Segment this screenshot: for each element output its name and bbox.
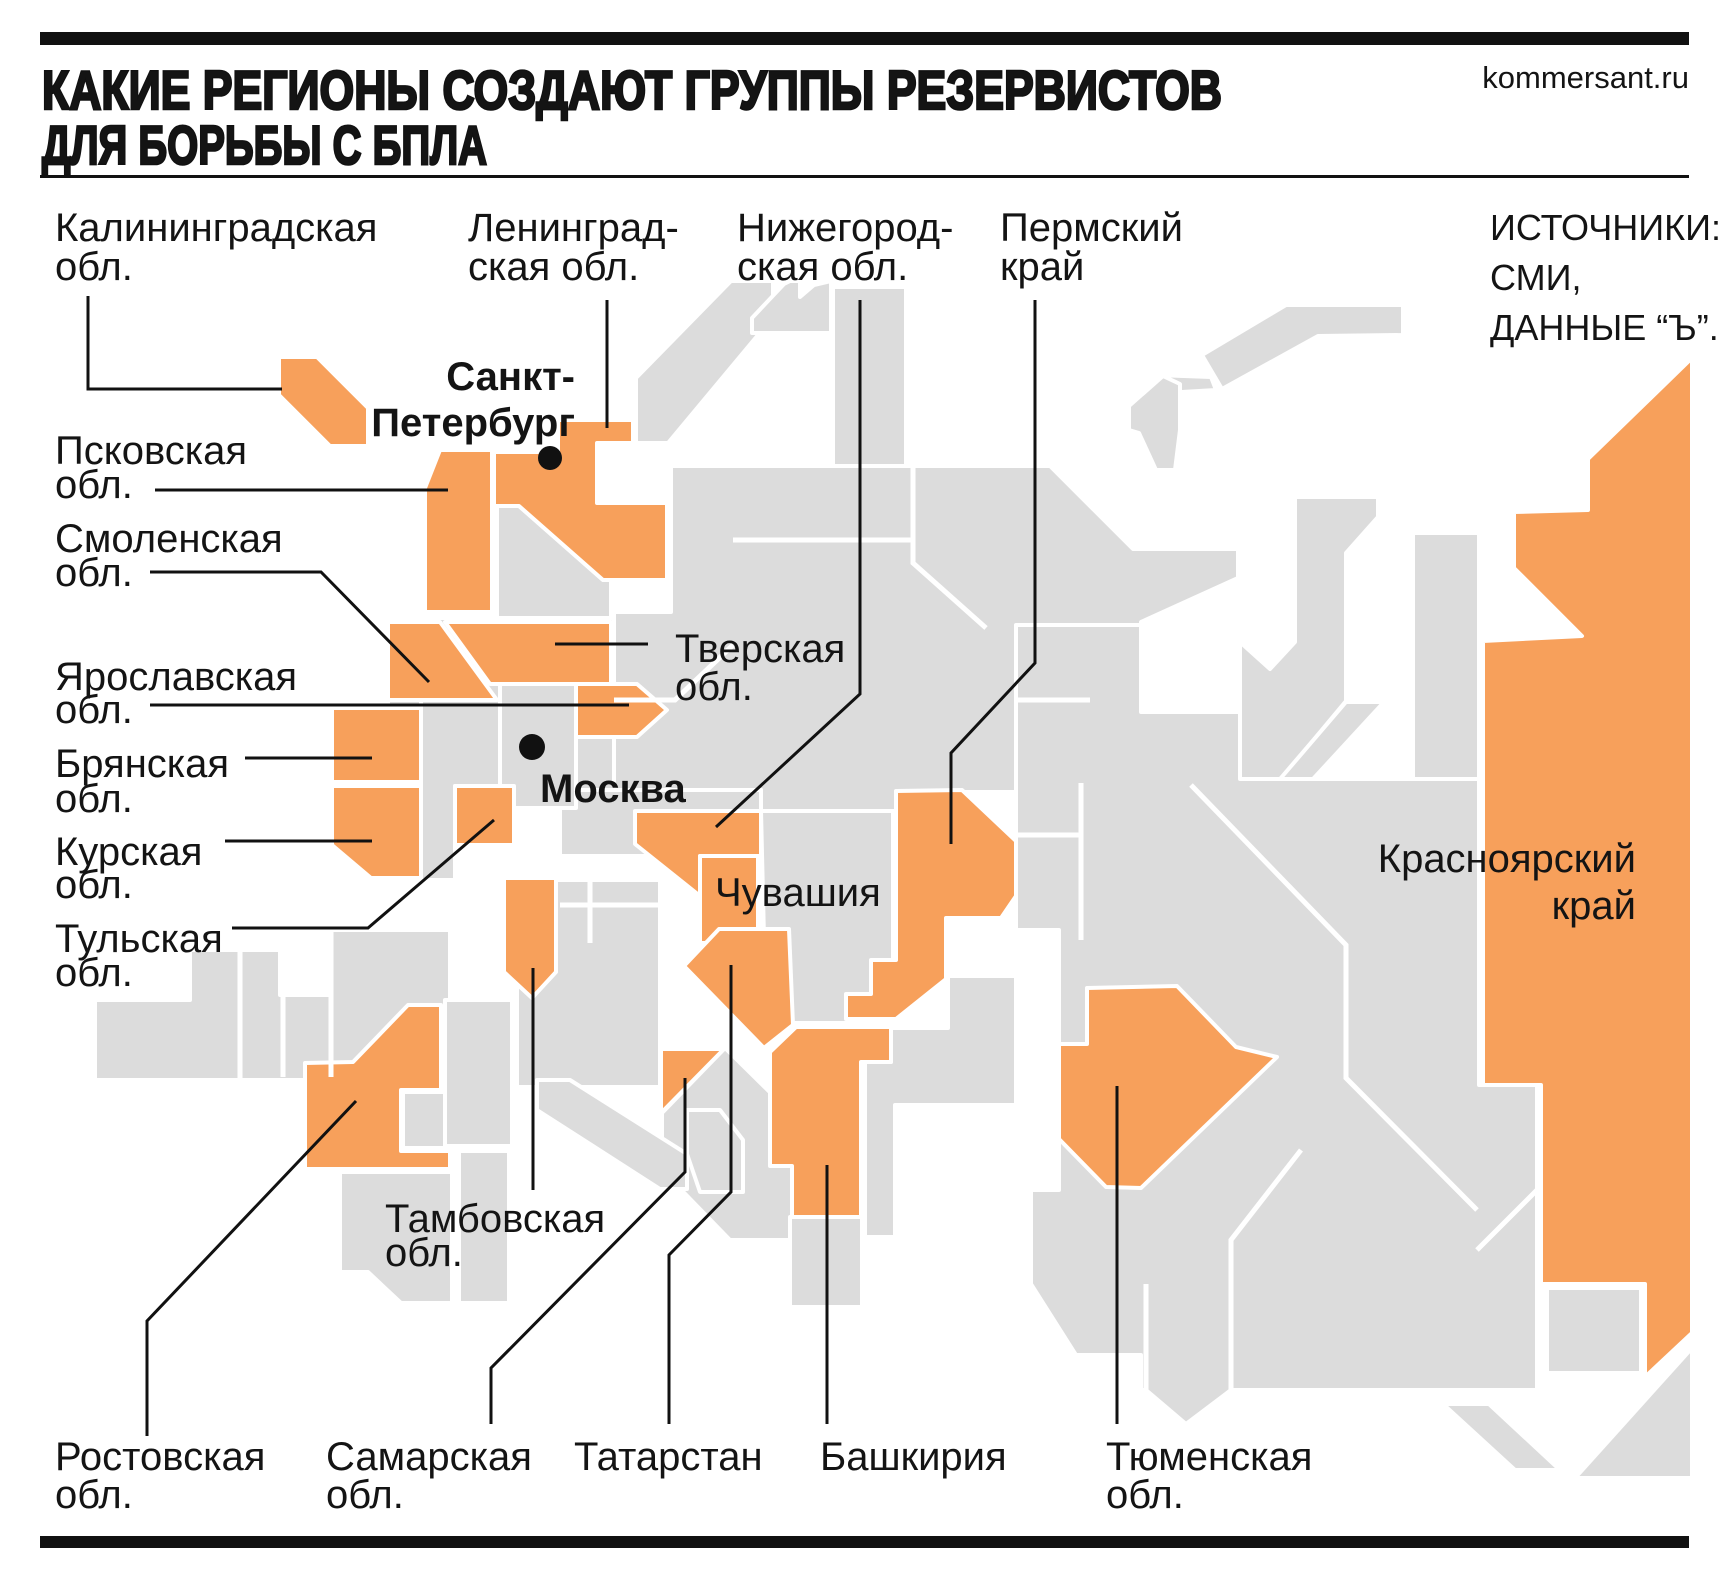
svg-text:ИСТОЧНИКИ:: ИСТОЧНИКИ: bbox=[1490, 207, 1721, 248]
svg-text:Пермский: Пермский bbox=[1000, 206, 1183, 250]
svg-text:обл.: обл. bbox=[55, 551, 133, 595]
svg-text:ская обл.: ская обл. bbox=[737, 245, 908, 289]
svg-text:ДЛЯ БОРЬБЫ С БПЛА: ДЛЯ БОРЬБЫ С БПЛА bbox=[42, 114, 487, 176]
svg-text:Татарстан: Татарстан bbox=[574, 1435, 763, 1479]
svg-text:обл.: обл. bbox=[675, 665, 753, 709]
svg-text:ДАННЫЕ “Ъ”.: ДАННЫЕ “Ъ”. bbox=[1490, 307, 1719, 348]
svg-text:обл.: обл. bbox=[55, 1473, 133, 1517]
svg-text:обл.: обл. bbox=[55, 688, 133, 732]
svg-text:Калининградская: Калининградская bbox=[55, 206, 377, 250]
svg-text:Петербург: Петербург bbox=[371, 401, 575, 445]
svg-text:Красноярский: Красноярский bbox=[1378, 837, 1636, 881]
svg-text:Санкт-: Санкт- bbox=[446, 355, 575, 399]
svg-text:Башкирия: Башкирия bbox=[820, 1435, 1007, 1479]
svg-text:ская обл.: ская обл. bbox=[468, 245, 639, 289]
svg-text:обл.: обл. bbox=[55, 777, 133, 821]
svg-text:край: край bbox=[1552, 884, 1636, 928]
svg-text:край: край bbox=[1000, 245, 1084, 289]
svg-text:Чувашия: Чувашия bbox=[715, 871, 881, 915]
svg-text:Ленинград-: Ленинград- bbox=[468, 206, 679, 250]
svg-text:обл.: обл. bbox=[55, 245, 133, 289]
svg-text:обл.: обл. bbox=[55, 463, 133, 507]
svg-text:обл.: обл. bbox=[385, 1231, 463, 1275]
svg-text:обл.: обл. bbox=[55, 951, 133, 995]
svg-text:обл.: обл. bbox=[55, 863, 133, 907]
svg-text:КАКИЕ РЕГИОНЫ СОЗДАЮТ ГРУППЫ Р: КАКИЕ РЕГИОНЫ СОЗДАЮТ ГРУППЫ РЕЗЕРВИСТОВ bbox=[42, 59, 1222, 121]
svg-text:Москва: Москва bbox=[540, 767, 687, 811]
svg-text:Нижегород-: Нижегород- bbox=[737, 206, 953, 250]
svg-text:СМИ,: СМИ, bbox=[1490, 257, 1581, 298]
svg-text:обл.: обл. bbox=[1106, 1473, 1184, 1517]
svg-text:обл.: обл. bbox=[326, 1473, 404, 1517]
svg-text:kommersant.ru: kommersant.ru bbox=[1482, 60, 1689, 95]
